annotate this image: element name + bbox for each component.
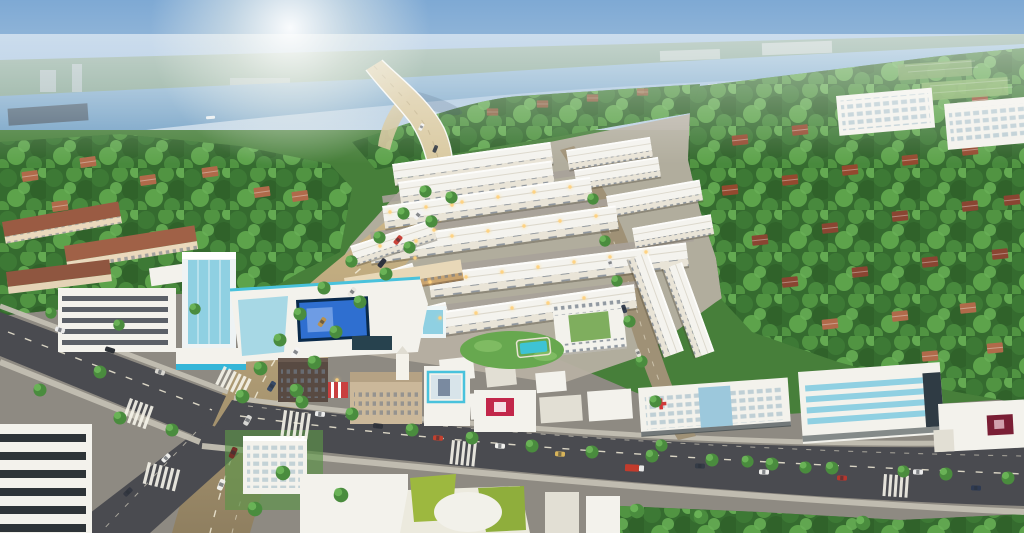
striped-gate [328, 382, 348, 398]
billboard-building [424, 366, 470, 426]
dark-red-sign-building [932, 399, 1024, 452]
tree [419, 185, 431, 197]
central-park [460, 331, 564, 369]
scene-canvas [0, 0, 1024, 533]
mall-glass-wedge [238, 296, 288, 356]
aerial-render-image [0, 0, 1024, 533]
glass-band-building [798, 362, 945, 444]
red-sign-building [474, 390, 536, 432]
striped-tower [0, 424, 92, 533]
hospital [638, 378, 791, 437]
